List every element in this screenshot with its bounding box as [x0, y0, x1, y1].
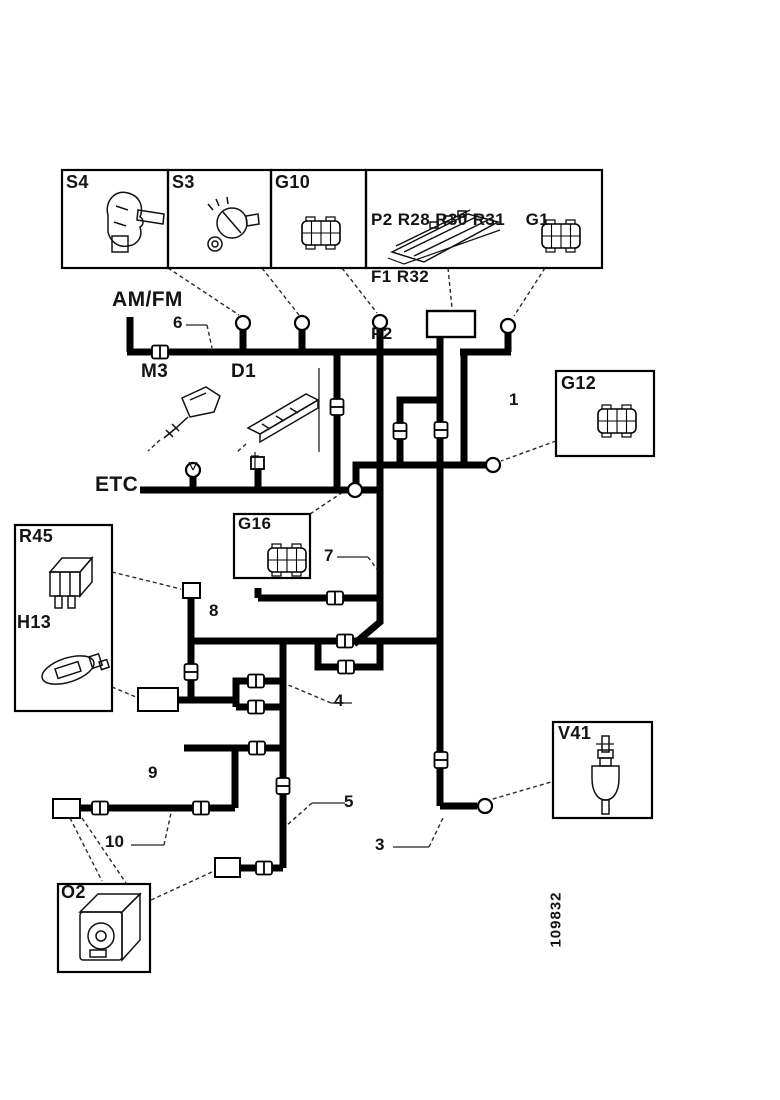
label-etc: ETC	[95, 474, 138, 496]
inline-connector-icon	[152, 346, 168, 359]
s4-drawing	[107, 192, 164, 252]
leader-o2-a	[70, 818, 102, 881]
wire-number-10: 10	[105, 832, 124, 852]
ring-terminal-icon	[486, 458, 500, 472]
label-s4: S4	[66, 173, 89, 192]
label-fuse-panel: P2 R28 R30 R31 G1 F1 R32 P2	[371, 172, 549, 362]
inline-connector-icon	[256, 862, 272, 875]
ring-terminal-icon	[236, 316, 250, 330]
leader-v41	[486, 782, 551, 801]
module-box-left	[138, 688, 178, 711]
label-v41: V41	[558, 724, 591, 743]
leader-5	[286, 803, 312, 826]
label-g10: G10	[275, 173, 310, 192]
label-h13: H13	[17, 613, 51, 632]
wire-number-3: 3	[375, 835, 384, 855]
leader-10	[164, 813, 171, 845]
g12-connector-drawing	[598, 405, 636, 437]
label-d1: D1	[231, 362, 256, 382]
leader-h13	[112, 687, 136, 697]
leader-4	[286, 684, 331, 703]
inline-connector-icon	[277, 778, 290, 794]
part-number: 109832	[548, 880, 565, 960]
label-o2: O2	[61, 883, 86, 902]
module-box-bottom	[215, 858, 240, 877]
inline-connector-icon	[193, 802, 209, 815]
leader-d1-tail	[237, 444, 246, 452]
g10-connector-drawing	[302, 217, 340, 249]
inline-connector-icon	[92, 802, 108, 815]
inline-connector-icon	[337, 635, 353, 648]
inline-connector-icon	[248, 701, 264, 714]
wire-number-7: 7	[324, 546, 333, 566]
inline-connector-icon	[338, 661, 354, 674]
leader-r45	[112, 572, 181, 589]
ring-terminal-icon	[348, 483, 362, 497]
label-g16: G16	[238, 515, 271, 533]
leader-s3	[262, 268, 299, 315]
ring-terminal-icon	[478, 799, 492, 813]
g16-connector-drawing	[268, 544, 306, 576]
module-box-10	[53, 799, 80, 818]
inline-connector-icon	[435, 752, 448, 768]
label-m3: M3	[141, 362, 168, 382]
connector-block-8	[183, 583, 200, 598]
inline-connector-icon	[327, 592, 343, 605]
leader-g12	[501, 441, 556, 461]
inline-connector-icon	[249, 742, 265, 755]
leader-3	[429, 818, 443, 847]
o2-speaker-drawing	[80, 894, 140, 960]
ring-terminal-icon	[295, 316, 309, 330]
leader-6	[207, 325, 212, 348]
wire-number-9: 9	[148, 763, 157, 783]
label-amfm: AM/FM	[112, 289, 183, 311]
leader-m3-tail	[148, 440, 160, 451]
inline-connector-icon	[435, 422, 448, 438]
wire-number-5: 5	[344, 792, 353, 812]
label-fuse-line3: P2	[371, 324, 549, 343]
leader-o2-c	[151, 872, 212, 900]
wire-number-6: 6	[173, 313, 182, 333]
label-r45: R45	[19, 527, 53, 546]
wire-number-1: 1	[509, 390, 518, 410]
inline-connector-icon	[394, 423, 407, 439]
wiring-diagram-canvas	[0, 0, 780, 1100]
module-boxes	[53, 311, 475, 877]
wire-number-4: 4	[334, 691, 343, 711]
wire-mid-cross	[356, 465, 486, 490]
wire-number-8: 8	[209, 601, 218, 621]
v41-drawing	[592, 736, 619, 814]
h13-drawing	[39, 646, 110, 690]
s3-drawing	[208, 197, 259, 251]
label-fuse-line1: P2 R28 R30 R31 G1	[371, 210, 549, 229]
label-g12: G12	[561, 374, 596, 393]
r45-drawing	[50, 558, 92, 608]
connector-block-etc	[251, 457, 264, 469]
label-s3: S3	[172, 173, 195, 192]
inline-connector-icon	[248, 675, 264, 688]
inline-connector-icon	[331, 399, 344, 415]
inline-connector-icon	[185, 664, 198, 680]
m3-drawing	[164, 387, 220, 470]
label-fuse-line2: F1 R32	[371, 267, 549, 286]
wiring-diagram-page: S4 S3 G10 P2 R28 R30 R31 G1 F1 R32 P2 AM…	[0, 0, 780, 1100]
